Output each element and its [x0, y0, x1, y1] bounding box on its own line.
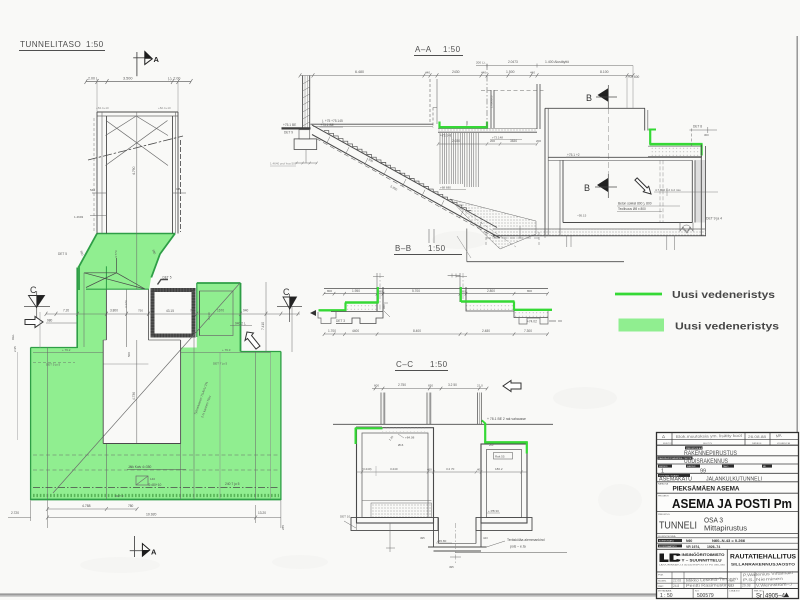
- svg-text:DET 5 ju 5: DET 5 ju 5: [46, 363, 60, 367]
- svg-text:495: 495: [420, 536, 425, 540]
- svg-text:TUNNELI: TUNNELI: [659, 520, 697, 532]
- svg-text:1.700: 1.700: [328, 329, 336, 333]
- svg-text:Y – SUUNNITTELU: Y – SUUNNITTELU: [682, 558, 722, 563]
- svg-text:+73.148: +73.148: [492, 136, 503, 140]
- svg-text:+ 76.2: + 76.2: [62, 348, 71, 352]
- svg-text:PIIRT.: PIIRT.: [658, 586, 664, 588]
- svg-text:LAIVURINKATU 4 00140 ESPOO 5: LAIVURINKATU 4 00140 ESPOO 57 PU 090-330: [659, 563, 726, 566]
- svg-text:4905–4: 4905–4: [765, 594, 786, 600]
- svg-text:DET 5: DET 5: [163, 276, 172, 280]
- svg-text:200 ),),: 200 ),),: [476, 61, 486, 65]
- svg-text:N60: N60: [686, 539, 692, 543]
- svg-text:PIIRUSTUS: PIIRUSTUS: [658, 514, 670, 516]
- svg-text:285: 285: [281, 525, 285, 530]
- svg-text:26.08.88: 26.08.88: [748, 435, 766, 439]
- svg-text:300: 300: [704, 133, 709, 137]
- svg-text:B–B: B–B: [395, 244, 412, 253]
- svg-text:1.000/600: 1.000/600: [490, 95, 494, 108]
- svg-text:4.790: 4.790: [132, 166, 136, 175]
- svg-text:VR 1974,: VR 1974,: [686, 545, 700, 549]
- svg-text:4.7 800 4.2 4.2 mio: 4.7 800 4.2 4.2 mio: [655, 188, 681, 192]
- svg-text:Ø16: Ø16: [398, 443, 404, 447]
- svg-text:SUUNNITELTAVA: SUUNNITELTAVA: [658, 535, 676, 538]
- svg-text:2.750: 2.750: [398, 383, 406, 387]
- svg-text:+ 78.1 BE 2 rak vahausse: + 78.1 BE 2 rak vahausse: [487, 417, 526, 421]
- svg-text:(3.240): (3.240): [362, 467, 372, 471]
- svg-text:PIIR. N:O: PIIR. N:O: [754, 590, 764, 592]
- svg-text:DET 8: DET 8: [693, 125, 702, 129]
- svg-text:KAMYER: KAMYER: [687, 465, 696, 468]
- svg-text:Δ: Δ: [662, 434, 665, 439]
- svg-text:DET 9 ja 4: DET 9 ja 4: [706, 217, 722, 221]
- svg-text:3.800: 3.800: [110, 309, 118, 313]
- svg-text:+84.08: +84.08: [405, 436, 415, 440]
- svg-text:TASO: TASO: [723, 465, 729, 468]
- svg-text:21.0: 21.0: [477, 384, 483, 388]
- svg-text:N:O: N:O: [695, 590, 699, 592]
- svg-text:C: C: [283, 287, 290, 297]
- svg-text:500579: 500579: [697, 593, 714, 599]
- svg-text:3.500: 3.500: [123, 77, 133, 81]
- svg-text:440: 440: [530, 71, 535, 75]
- svg-text:650: 650: [428, 384, 433, 388]
- svg-text:A–A: A–A: [415, 45, 432, 54]
- svg-text:1.400 Alustäyttö: 1.400 Alustäyttö: [545, 60, 569, 64]
- svg-text:2430: 2430: [452, 70, 460, 74]
- svg-text:800: 800: [327, 289, 332, 293]
- svg-text:N60–N.43 = 0.266: N60–N.43 = 0.266: [712, 539, 745, 543]
- svg-text:200: 200: [489, 443, 494, 447]
- svg-text:DET 3: DET 3: [336, 319, 345, 323]
- svg-text:RAUTATIEHALLITUS: RAUTATIEHALLITUS: [730, 554, 796, 561]
- svg-text:KORKEUSJÄRJ.: KORKEUSJÄRJ.: [659, 540, 675, 543]
- svg-text:Uusi vedeneristys: Uusi vedeneristys: [672, 289, 775, 301]
- svg-text:S=80+10: S=80+10: [148, 483, 162, 487]
- svg-text:1670: 1670: [217, 309, 224, 313]
- svg-text:4400: 4400: [352, 329, 359, 333]
- svg-text:HYVÄKSYJÄ: HYVÄKSYJÄ: [777, 442, 790, 445]
- svg-text:940: 940: [243, 309, 249, 313]
- svg-text:750: 750: [138, 309, 143, 313]
- svg-text:), +75 +75.145: ), +75 +75.145: [322, 119, 343, 123]
- svg-text:PROJEKTI: PROJEKTI: [658, 495, 669, 497]
- svg-text:PÄIVÄYS: PÄIVÄYS: [752, 442, 762, 445]
- svg-text:Uusi vedeneristys: Uusi vedeneristys: [675, 321, 779, 333]
- svg-text:MUUTOS: MUUTOS: [663, 443, 673, 445]
- svg-text:MK: MK: [775, 433, 782, 439]
- svg-text:1:50: 1:50: [86, 40, 104, 49]
- svg-text:1.4693: 1.4693: [74, 215, 84, 219]
- svg-text:8.400: 8.400: [413, 329, 421, 333]
- svg-text:DET 5: DET 5: [58, 252, 67, 256]
- svg-text:180.2: 180.2: [495, 467, 503, 471]
- svg-text:Sr: Sr: [756, 594, 762, 600]
- svg-text:200: 200: [536, 139, 541, 143]
- svg-text:600: 600: [374, 384, 379, 388]
- svg-text:+75.1 BE: +75.1 BE: [283, 123, 296, 127]
- svg-text:500: 500: [127, 352, 131, 357]
- svg-text:1 : 50: 1 : 50: [660, 593, 673, 599]
- svg-text:Mittapirustus: Mittapirustus: [704, 526, 748, 533]
- svg-text:C–C: C–C: [396, 360, 414, 369]
- svg-text:600: 600: [628, 75, 633, 79]
- svg-text:B: B: [584, 183, 590, 193]
- svg-text:4.736: 4.736: [132, 392, 136, 400]
- svg-text:+82.4+10: +82.4+10: [158, 106, 171, 110]
- svg-text:RATAOSA: RATAOSA: [658, 483, 669, 486]
- svg-text:3.2 50: 3.2 50: [448, 383, 457, 387]
- svg-text:440: 440: [425, 71, 430, 75]
- svg-text:140: 140: [150, 477, 155, 481]
- svg-text:B: B: [586, 93, 592, 103]
- svg-text:3.240: 3.240: [390, 467, 398, 471]
- svg-text:1.500: 1.500: [506, 70, 515, 74]
- svg-text:+68 680: +68 680: [440, 186, 451, 190]
- svg-text:+84.4+10: +84.4+10: [96, 106, 109, 110]
- svg-text:ASEMA JA POSTI Pm: ASEMA JA POSTI Pm: [672, 497, 792, 511]
- svg-text:7.410: 7.410: [261, 322, 265, 330]
- svg-text:40: 40: [477, 468, 481, 472]
- svg-text:22.08: 22.08: [673, 579, 681, 583]
- svg-text:4.773: 4.773: [114, 250, 118, 258]
- svg-text:DEL: DEL: [11, 334, 15, 340]
- svg-text:+73.148: +73.148: [440, 134, 452, 138]
- svg-text:C: C: [30, 285, 37, 295]
- svg-text:+45.80: +45.80: [437, 539, 447, 543]
- svg-text:TARK.: TARK.: [729, 580, 736, 583]
- svg-text:Pentti Rasimustinen: Pentti Rasimustinen: [686, 582, 735, 588]
- svg-text:SILLANRAKENNUSJAOSTO: SILLANRAKENNUSJAOSTO: [731, 561, 795, 566]
- svg-text:3.173: 3.173: [124, 300, 128, 308]
- svg-text:440: 440: [481, 71, 486, 75]
- svg-text:),), 2.00: ),), 2.00: [168, 77, 180, 81]
- svg-text:730: 730: [190, 309, 195, 313]
- svg-text:+ PB 30: + PB 30: [488, 509, 499, 513]
- svg-text:1.4640 prof kva 50: 1.4640 prof kva 50: [270, 162, 295, 166]
- svg-text:GB: GB: [176, 187, 180, 191]
- svg-text:1.950: 1.950: [352, 289, 360, 293]
- svg-text:+ 76.3: + 76.3: [222, 348, 231, 352]
- svg-text:2.800: 2.800: [487, 289, 495, 293]
- svg-text:5.700: 5.700: [412, 289, 420, 293]
- svg-text:INSINÖÖRITOIMISTO: INSINÖÖRITOIMISTO: [682, 552, 725, 557]
- svg-text:800: 800: [527, 289, 532, 293]
- svg-text:KOORDINAATISTO: KOORDINAATISTO: [659, 545, 677, 548]
- svg-text:1:50: 1:50: [428, 244, 446, 253]
- svg-text:10.920: 10.920: [146, 513, 156, 517]
- svg-text:7.20: 7.20: [63, 309, 69, 313]
- svg-text:2.00 ),: 2.00 ),: [88, 77, 98, 81]
- svg-text:PIEKSÄMÄEN ASEMA: PIEKSÄMÄEN ASEMA: [673, 484, 740, 492]
- svg-text:4.788: 4.788: [82, 504, 91, 508]
- svg-text:6.480: 6.480: [355, 70, 364, 74]
- svg-text:2.95: 2.95: [13, 346, 17, 352]
- svg-text:13.20: 13.20: [258, 511, 266, 515]
- svg-text:3.2 70: 3.2 70: [446, 467, 455, 471]
- svg-text:1926–74: 1926–74: [707, 545, 720, 549]
- svg-text:8.100: 8.100: [600, 70, 609, 74]
- svg-text:24.8: 24.8: [673, 584, 679, 588]
- svg-text:500: 500: [465, 120, 469, 125]
- svg-text:Rak 55: Rak 55: [495, 455, 505, 459]
- svg-text:29.08: 29.08: [742, 584, 751, 588]
- svg-text:43.15: 43.15: [166, 309, 174, 313]
- svg-text:600: 600: [634, 75, 640, 79]
- svg-text:+75.1 +2: +75.1 +2: [567, 153, 580, 157]
- svg-text:780: 780: [128, 504, 134, 508]
- svg-text:SELITYS: SELITYS: [703, 443, 713, 445]
- svg-text:SUUNN.: SUUNN.: [658, 581, 667, 583]
- svg-text:PVM.: PVM.: [658, 575, 664, 577]
- svg-text:OSA 3: OSA 3: [704, 518, 723, 525]
- svg-text:+74.02: +74.02: [527, 320, 537, 324]
- svg-text:LNKA N:O: LNKA N:O: [730, 589, 740, 592]
- svg-text:540: 540: [90, 188, 95, 192]
- svg-text:940.2 ),: 940.2 ),: [235, 322, 246, 326]
- svg-text:TUNNELITASO: TUNNELITASO: [20, 40, 81, 49]
- svg-text:2.030: 2.030: [452, 139, 460, 143]
- svg-text:2.480: 2.480: [482, 329, 490, 333]
- svg-text:460: 460: [427, 468, 432, 472]
- svg-text:DET 9: DET 9: [284, 131, 293, 135]
- svg-text:Beton sokkel 800 ), 800: Beton sokkel 800 ), 800: [618, 202, 652, 206]
- svg-text:443: 443: [483, 536, 488, 540]
- svg-text:495: 495: [449, 565, 454, 569]
- svg-text:Jälk Kaiv 4=350: Jälk Kaiv 4=350: [128, 465, 152, 469]
- svg-text:2.720: 2.720: [11, 511, 19, 515]
- svg-text:2.0473: 2.0473: [508, 60, 518, 64]
- svg-text:pois – e.ta: pois – e.ta: [510, 545, 526, 549]
- svg-text:DET 9: DET 9: [115, 494, 124, 498]
- svg-text:HYV.: HYV.: [729, 586, 734, 588]
- svg-text:1:50: 1:50: [430, 360, 448, 369]
- svg-text:DET 10: DET 10: [340, 515, 350, 519]
- svg-text:Teräsköläa alemmankind: Teräsköläa alemmankind: [507, 538, 545, 542]
- svg-text:Teollisuus Ø8 x 800: Teollisuus Ø8 x 800: [618, 207, 646, 211]
- svg-text:240 7 ju 5: 240 7 ju 5: [225, 482, 240, 486]
- svg-text:7.300: 7.300: [524, 329, 532, 333]
- svg-text:MITTAKAAVA: MITTAKAAVA: [658, 589, 672, 592]
- svg-text:940: 940: [382, 304, 386, 309]
- svg-text:980: 980: [47, 319, 53, 323]
- svg-text:A: A: [151, 548, 157, 557]
- svg-text:A: A: [154, 55, 160, 64]
- svg-text:1:50: 1:50: [443, 45, 461, 54]
- svg-text:~95.15: ~95.15: [577, 214, 587, 218]
